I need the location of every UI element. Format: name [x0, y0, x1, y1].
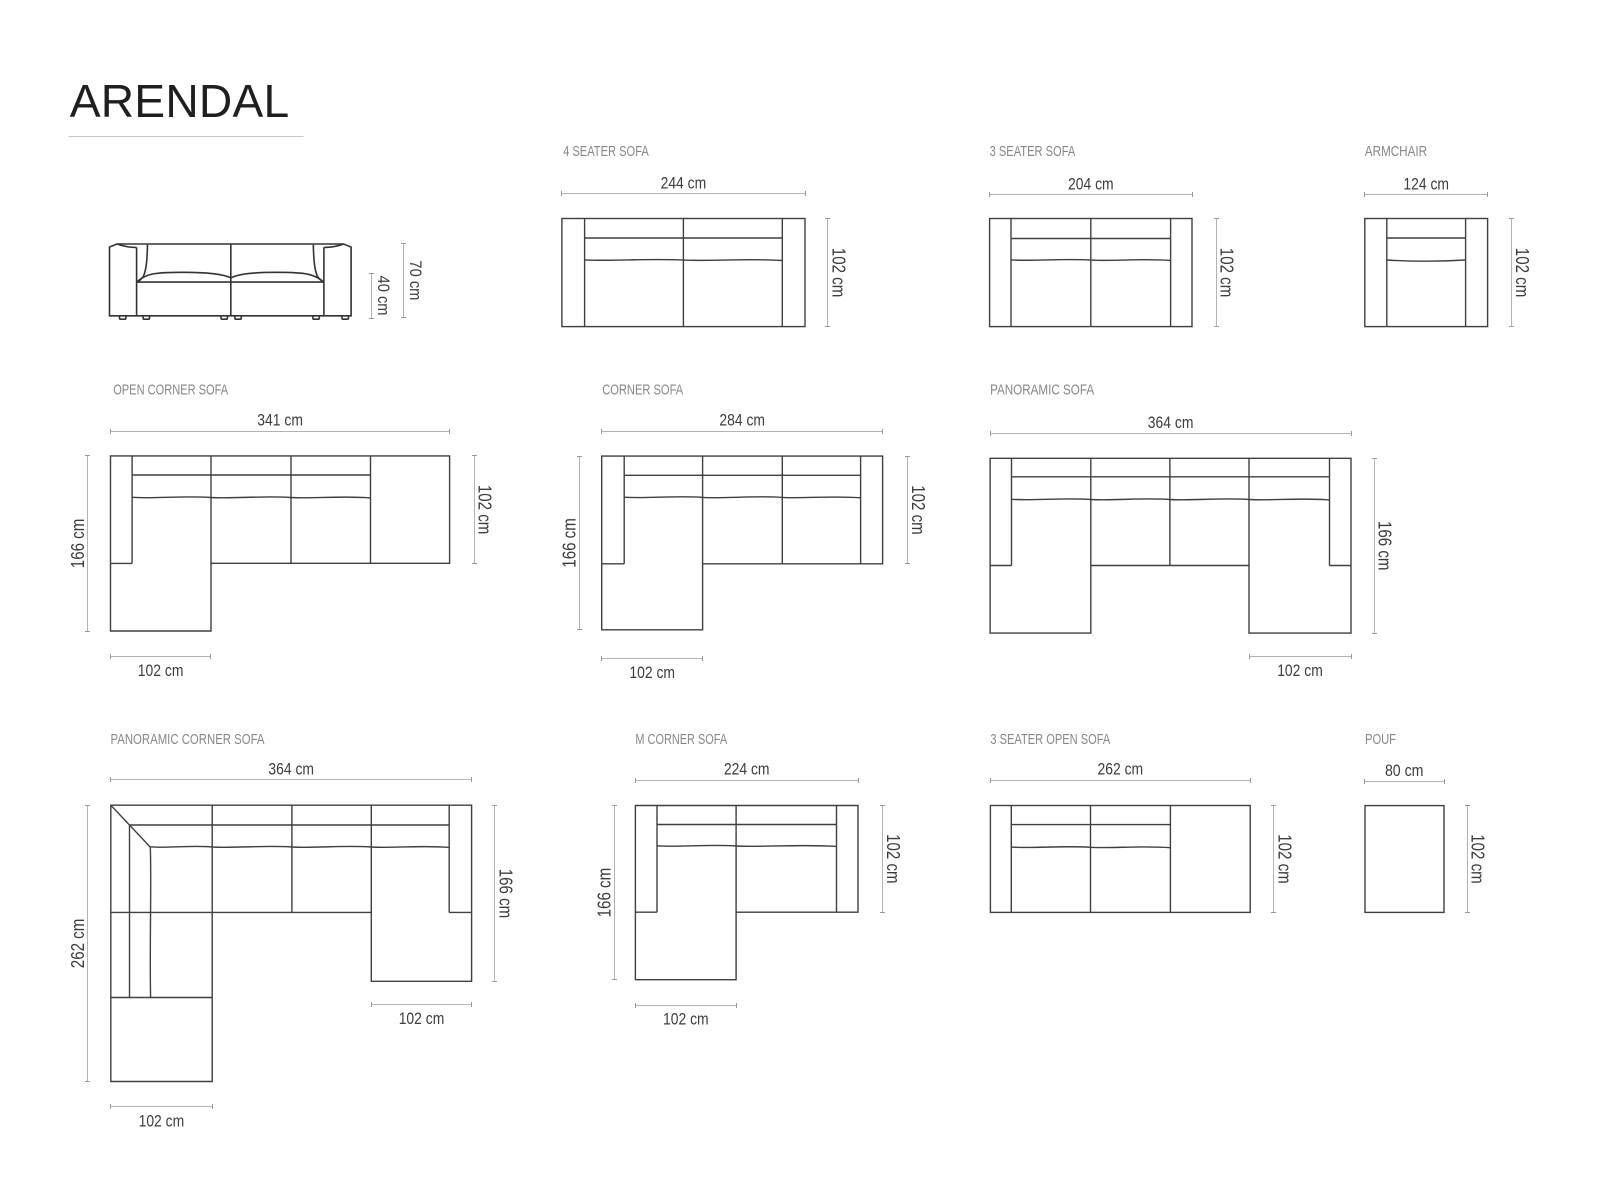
- svg-text:102 cm: 102 cm: [1512, 248, 1533, 298]
- svg-text:102 cm: 102 cm: [475, 485, 496, 534]
- svg-text:124 cm: 124 cm: [1403, 174, 1449, 193]
- svg-text:224 cm: 224 cm: [724, 760, 770, 779]
- svg-text:ARENDAL: ARENDAL: [70, 75, 290, 127]
- svg-text:102 cm: 102 cm: [1217, 248, 1238, 298]
- svg-text:40 cm: 40 cm: [374, 276, 393, 316]
- svg-text:262 cm: 262 cm: [1098, 760, 1144, 779]
- svg-text:POUF: POUF: [1365, 731, 1396, 748]
- svg-text:102 cm: 102 cm: [663, 1010, 709, 1029]
- svg-text:M CORNER SOFA: M CORNER SOFA: [635, 731, 727, 748]
- svg-text:284 cm: 284 cm: [719, 411, 765, 430]
- svg-text:244 cm: 244 cm: [661, 174, 707, 193]
- svg-text:102 cm: 102 cm: [399, 1009, 445, 1028]
- svg-text:102 cm: 102 cm: [138, 661, 184, 680]
- svg-text:102 cm: 102 cm: [1468, 834, 1489, 884]
- svg-text:166 cm: 166 cm: [67, 519, 88, 569]
- svg-text:341 cm: 341 cm: [257, 411, 303, 430]
- svg-text:262 cm: 262 cm: [67, 919, 88, 969]
- svg-text:PANORAMIC CORNER SOFA: PANORAMIC CORNER SOFA: [111, 731, 265, 748]
- svg-text:OPEN CORNER SOFA: OPEN CORNER SOFA: [113, 381, 228, 398]
- svg-text:102 cm: 102 cm: [139, 1112, 185, 1131]
- svg-text:80 cm: 80 cm: [1385, 761, 1424, 780]
- svg-text:102 cm: 102 cm: [908, 485, 929, 535]
- svg-text:364 cm: 364 cm: [268, 759, 314, 778]
- svg-text:166 cm: 166 cm: [594, 868, 615, 918]
- svg-text:166 cm: 166 cm: [1375, 521, 1396, 571]
- svg-text:PANORAMIC SOFA: PANORAMIC SOFA: [990, 381, 1094, 398]
- svg-text:4 SEATER SOFA: 4 SEATER SOFA: [563, 143, 649, 160]
- svg-text:166 cm: 166 cm: [496, 869, 517, 919]
- svg-text:166 cm: 166 cm: [559, 518, 580, 568]
- svg-text:102 cm: 102 cm: [1277, 661, 1323, 680]
- svg-text:364 cm: 364 cm: [1148, 413, 1194, 432]
- svg-text:204 cm: 204 cm: [1068, 174, 1114, 193]
- svg-text:3 SEATER SOFA: 3 SEATER SOFA: [990, 143, 1076, 160]
- svg-text:102 cm: 102 cm: [629, 663, 675, 682]
- svg-text:CORNER SOFA: CORNER SOFA: [602, 381, 683, 398]
- svg-text:70 cm: 70 cm: [406, 260, 425, 300]
- svg-text:102 cm: 102 cm: [883, 834, 904, 884]
- svg-text:102 cm: 102 cm: [1275, 834, 1296, 884]
- svg-text:ARMCHAIR: ARMCHAIR: [1365, 143, 1427, 160]
- svg-text:102 cm: 102 cm: [828, 248, 849, 298]
- svg-text:3 SEATER OPEN SOFA: 3 SEATER OPEN SOFA: [990, 731, 1110, 748]
